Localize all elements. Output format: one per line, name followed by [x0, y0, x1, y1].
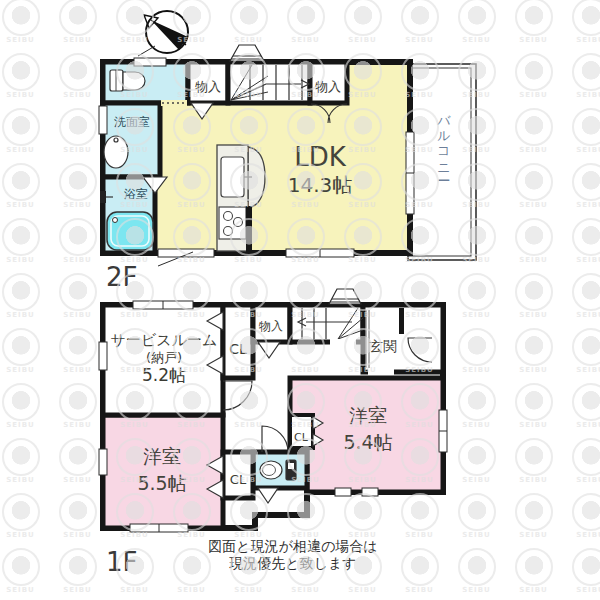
kitchen-sink-icon [221, 157, 244, 197]
kitchen-wall-stub [246, 206, 252, 253]
storage-a-label: 物入 [195, 79, 221, 94]
closet-a-label: CL [229, 341, 247, 357]
ldk-label: LDK [294, 142, 347, 172]
bathroom-label: 浴室 [124, 187, 148, 201]
ldk-size-label: 14.3帖 [288, 173, 353, 197]
floorplan-image: バルコニー [0, 0, 600, 600]
opening-stairs-hall [330, 339, 356, 345]
washroom-label: 洗面室 [114, 115, 150, 129]
balcony: バルコニー [408, 64, 476, 260]
floor-1f-label: 1F [106, 547, 138, 577]
closet-b-label: CL [294, 431, 309, 444]
storage-1f-label: 物入 [258, 319, 283, 333]
closet-c-label: CL [230, 472, 247, 487]
compass-north-icon [144, 11, 188, 53]
toilet-icon-1f [260, 460, 296, 480]
balcony-label: バルコニー [436, 106, 451, 181]
entrance-wall-stub [399, 308, 404, 334]
bedroom-5-4-label: 洋室 [349, 404, 387, 426]
stairs-2f [228, 62, 310, 103]
bathtub-icon [107, 212, 153, 250]
disclaimer-line1: 図面と現況が相違の場合は [208, 538, 377, 554]
opening-entrance-hall [368, 369, 394, 375]
floor-1f: サービスルーム (納戸) 5.2帖 CL 物入 玄関 洋室 5.4帖 CL 洋室… [99, 289, 447, 577]
sink-icon-washroom [104, 136, 128, 168]
entrance-label: 玄関 [369, 338, 397, 354]
service-room-label: サービスルーム [111, 331, 218, 349]
floor-2f: バルコニー [99, 11, 476, 292]
bedroom-5-5-size-label: 5.5帖 [137, 472, 186, 494]
service-room-size-label: 5.2帖 [142, 365, 186, 385]
disclaimer-line2: 現況優先と致します [229, 555, 356, 571]
service-room-sub-label: (納戸) [146, 350, 182, 365]
storage-b-label: 物入 [315, 79, 341, 94]
floorplan-svg: バルコニー [0, 0, 600, 600]
bedroom-5-4-size-label: 5.4帖 [343, 431, 392, 453]
bedroom-5-5-label: 洋室 [143, 445, 181, 467]
floor-2f-label: 2F [106, 262, 138, 292]
toilet-icon-2f [110, 70, 145, 91]
